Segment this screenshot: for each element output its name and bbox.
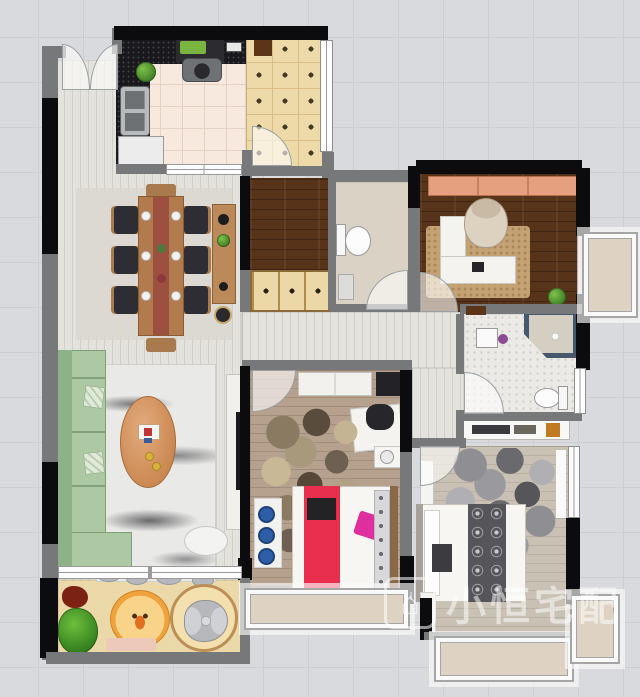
wall	[240, 270, 250, 312]
sofa-pillow	[83, 385, 106, 410]
shelf-box-orange	[546, 423, 560, 437]
kitchen-dish	[226, 42, 242, 52]
bedroom2-curtain	[556, 450, 566, 518]
window	[574, 368, 586, 414]
bath-fixture	[338, 274, 354, 300]
bay-window	[246, 590, 408, 628]
bedroom2-headboard	[416, 504, 423, 602]
ensuite-toilet-bowl	[534, 388, 560, 408]
wall	[328, 176, 336, 310]
wall	[246, 166, 334, 176]
dining-chair	[114, 246, 138, 274]
wall	[40, 578, 58, 658]
stool-blue	[258, 527, 275, 544]
balcony-mat	[106, 638, 156, 651]
dining-bench	[146, 338, 176, 352]
wall	[242, 360, 412, 370]
plate	[171, 291, 181, 301]
dining-chair	[184, 286, 208, 314]
cutting-board	[180, 41, 206, 54]
wall	[408, 208, 420, 312]
wall	[114, 26, 254, 40]
window	[568, 446, 580, 518]
dining-chair	[184, 206, 208, 234]
wall	[576, 168, 590, 236]
bay-window	[572, 596, 618, 662]
sliding-door	[58, 566, 242, 579]
fruit	[152, 462, 161, 471]
sofa-back	[58, 350, 72, 572]
window	[320, 40, 333, 152]
wall	[250, 26, 328, 40]
toilet-bowl	[345, 226, 371, 256]
french-door-leaf	[62, 44, 90, 90]
bedroom2-runner	[468, 504, 506, 602]
sideboard-vase	[218, 214, 229, 225]
wall	[400, 452, 412, 560]
fruit	[145, 452, 154, 461]
ensuite-sink	[476, 328, 498, 348]
entry-door-wood	[254, 40, 272, 56]
master-bed-pillow	[307, 498, 336, 520]
side-table	[184, 526, 228, 556]
master-dresser	[298, 372, 372, 396]
kitchen-sink	[120, 86, 150, 136]
stool-blue	[258, 548, 275, 565]
wall	[416, 160, 582, 174]
shelf-items	[514, 425, 536, 434]
french-door-leaf	[90, 44, 118, 90]
desk-item	[472, 262, 484, 272]
bay-window	[436, 638, 572, 680]
bedroom2-pillow-dark	[432, 544, 452, 572]
table-decor	[157, 274, 166, 283]
plate	[171, 251, 181, 261]
master-bolster	[374, 490, 390, 606]
door-threshold	[466, 306, 486, 315]
stool-blue	[258, 506, 275, 523]
wall	[42, 462, 58, 544]
kitchen-plant	[136, 62, 156, 82]
floor-lamp	[214, 306, 232, 324]
tray-item	[144, 428, 152, 436]
balcony-plant-red	[62, 586, 88, 608]
ensuite-toilet-tank	[558, 386, 568, 410]
sofa-pillow	[83, 451, 105, 475]
plate	[141, 291, 151, 301]
table-decor	[157, 244, 166, 253]
desk-chair	[464, 198, 508, 248]
dining-chair	[114, 286, 138, 314]
plate	[141, 211, 151, 221]
wall	[456, 314, 464, 374]
wall	[240, 176, 250, 272]
wall	[400, 366, 412, 452]
sliding-door	[166, 164, 242, 175]
balcony-plant	[58, 608, 98, 654]
vanity-mirror	[380, 450, 394, 464]
plate	[171, 211, 181, 221]
master-unit	[376, 372, 402, 396]
study-wall-cabinet	[428, 176, 580, 196]
wall	[46, 652, 250, 664]
tray-item	[144, 438, 152, 443]
shelf-items	[472, 425, 510, 434]
wall	[566, 518, 580, 604]
plate	[141, 251, 151, 261]
sideboard-plant	[217, 234, 230, 247]
ensuite-flowers	[498, 334, 508, 344]
dining-chair	[114, 206, 138, 234]
cloakroom-floor	[250, 178, 330, 270]
bay-window	[584, 234, 636, 316]
dining-chair	[184, 246, 208, 274]
cloakroom-wardrobe	[250, 270, 330, 312]
master-chair	[366, 404, 394, 430]
range-hood	[182, 58, 222, 82]
sideboard-vase	[219, 282, 228, 291]
wall	[42, 98, 58, 254]
floor-plan: ⌂ 小恒宅配	[0, 0, 640, 697]
